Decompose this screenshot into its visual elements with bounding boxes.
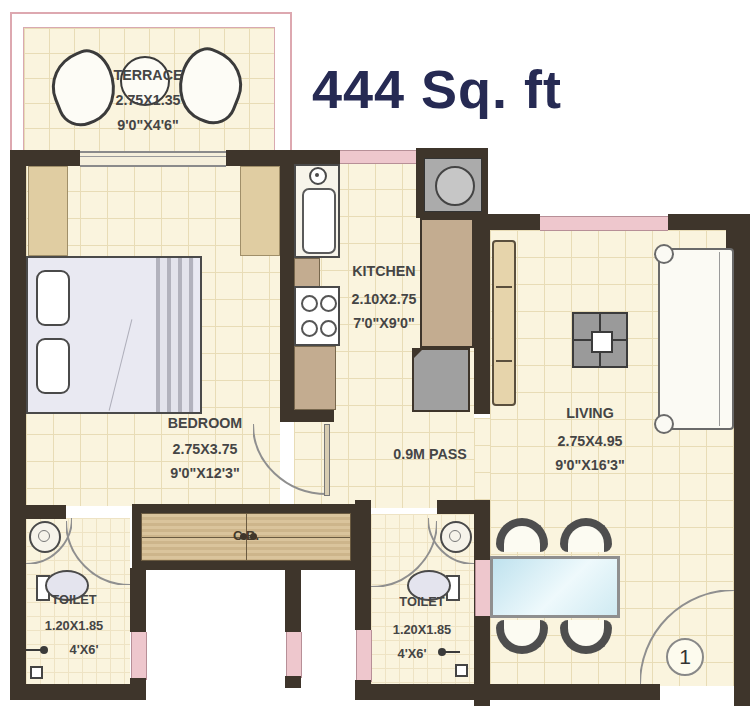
plumbing-valve-icon <box>26 646 48 654</box>
toilet-right-label: TOILET <box>365 594 479 609</box>
kitchen-size-m: 2.10X2.75 <box>308 290 460 307</box>
fridge-icon <box>412 348 470 412</box>
window <box>286 632 302 678</box>
kitchen-counter <box>294 346 336 410</box>
wall <box>474 214 540 230</box>
sink-basin <box>302 188 336 254</box>
wall <box>474 214 490 414</box>
wall <box>734 214 750 706</box>
kitchen-sink-unit <box>294 164 340 258</box>
wall <box>294 150 340 164</box>
door-panel <box>240 166 280 256</box>
terrace-sliding-door <box>80 151 226 167</box>
wall <box>285 568 301 632</box>
passage-label: 0.9M PASS <box>354 445 506 462</box>
toilet-left-size-m: 1.20X1.85 <box>17 618 131 633</box>
terrace-size-m: 2.75X1.35 <box>72 91 224 108</box>
cupboard-label: C.B. <box>132 528 360 543</box>
living-size-ft: 9'0"X16'3" <box>514 456 666 473</box>
window <box>340 150 416 164</box>
bedroom-door-leaf <box>324 424 330 496</box>
bed-fold-line <box>109 319 133 410</box>
cupboard: C.B. <box>132 504 360 570</box>
wall <box>280 150 294 422</box>
dining-table <box>490 556 620 618</box>
terrace-label: TERRACE <box>72 66 224 83</box>
pillow <box>36 338 70 394</box>
toilet-left-label: TOILET <box>17 592 131 607</box>
sofa-icon <box>658 248 734 430</box>
tv-unit <box>492 240 516 406</box>
door-panel <box>28 166 68 256</box>
window <box>540 216 668 231</box>
entrance-number-badge: 1 <box>666 638 704 676</box>
bed-blanket-stripes <box>156 258 194 412</box>
floor-drain-icon <box>455 664 468 677</box>
kitchen-size-ft: 7'0"X9'0" <box>308 314 460 331</box>
wall <box>280 408 334 422</box>
washing-machine-icon <box>424 158 482 212</box>
bed <box>26 256 202 414</box>
wall <box>10 150 80 166</box>
living-size-m: 2.75X4.95 <box>514 432 666 449</box>
wash-basin-icon <box>29 521 61 553</box>
page-title: 444 Sq. ft <box>312 58 612 120</box>
wall <box>285 676 301 688</box>
wall <box>10 505 66 519</box>
wall <box>355 680 371 700</box>
faucet-icon <box>309 167 327 185</box>
floor-plan: TERRACE 2.75X1.35 9'0"X4'6" 444 Sq. ft <box>0 0 750 706</box>
wall <box>130 568 146 632</box>
pillow <box>36 270 70 326</box>
wall <box>668 214 734 230</box>
living-label: LIVING <box>514 404 666 421</box>
wash-basin-icon <box>440 521 472 553</box>
kitchen-label: KITCHEN <box>308 262 460 279</box>
entrance-number: 1 <box>679 645 691 668</box>
center-table-icon <box>572 312 628 368</box>
floor-drain-icon <box>30 666 43 679</box>
toilet-right-size-m: 1.20X1.85 <box>365 622 479 637</box>
wall <box>10 684 146 700</box>
plumbing-valve-icon <box>438 648 460 656</box>
bedroom-door-arc <box>253 424 327 496</box>
wall <box>355 684 660 700</box>
terrace-size-ft: 9'0"X4'6" <box>72 116 224 133</box>
